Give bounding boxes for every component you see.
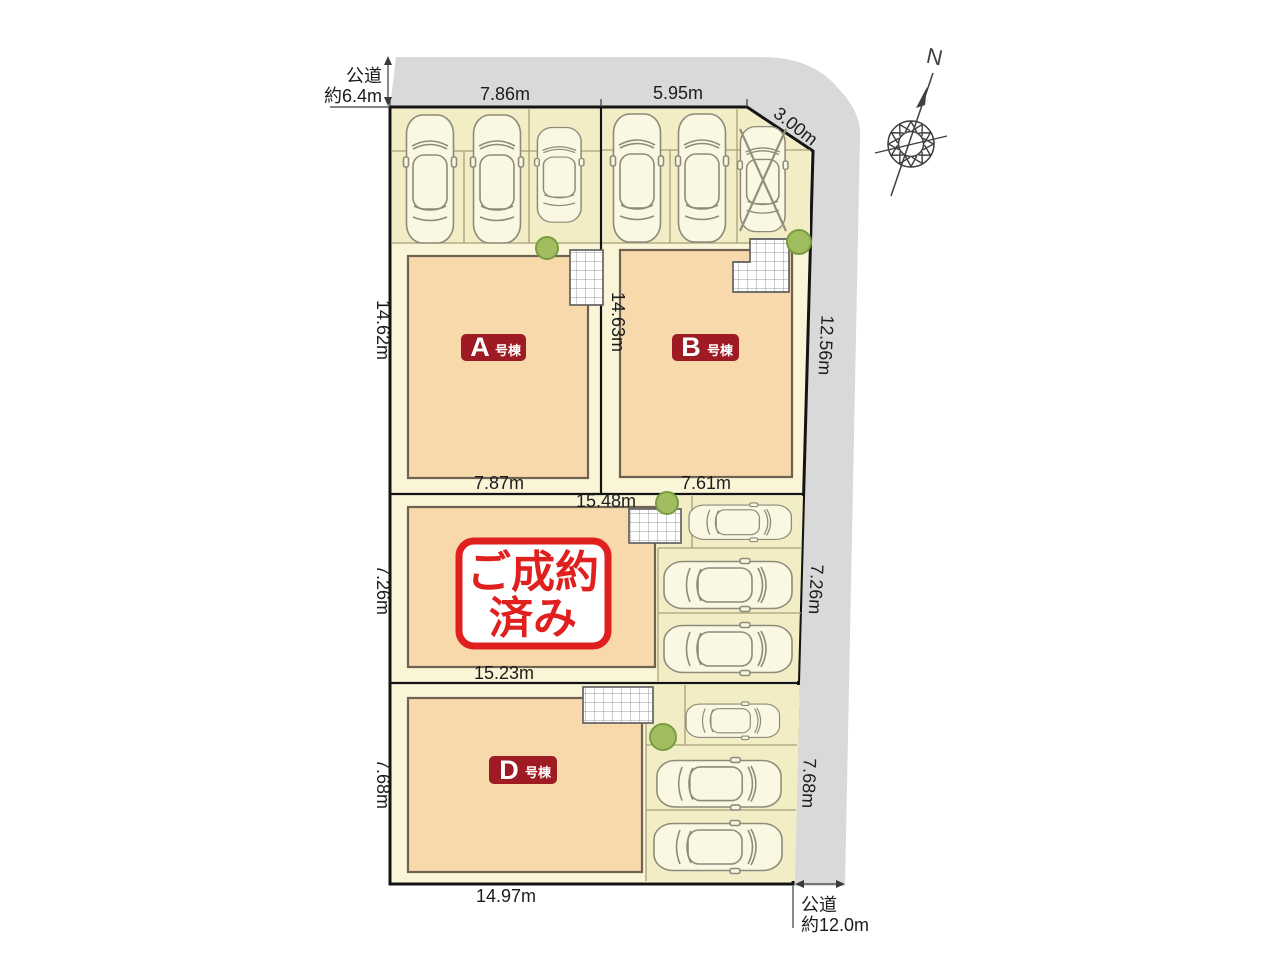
car-icon bbox=[676, 114, 729, 242]
road-label-top: 公道 約6.4m bbox=[324, 56, 392, 107]
badge-a-letter: A bbox=[470, 332, 490, 362]
dim-d-right: 7.68m bbox=[798, 758, 820, 809]
dim-d-left: 7.68m bbox=[373, 759, 393, 809]
badge-a: A 号棟 bbox=[461, 332, 526, 362]
porch-hatch-mid-grid bbox=[629, 509, 681, 543]
porch-hatch-d-grid bbox=[583, 687, 653, 723]
badge-a-suffix: 号棟 bbox=[495, 343, 522, 358]
car-icon bbox=[664, 623, 792, 676]
dim-mid-bottom: 15.23m bbox=[474, 663, 534, 683]
compass-needle-line bbox=[891, 73, 933, 196]
arrow-up-icon bbox=[384, 56, 392, 65]
car-icon bbox=[686, 702, 779, 740]
dim-d-bottom: 14.97m bbox=[476, 886, 536, 906]
tree-icon bbox=[656, 492, 678, 514]
building-a bbox=[408, 256, 588, 478]
site-plan-page: A 号棟 B 号棟 D 号棟 ご成約 済み 7.86m 5.95m 3.00m … bbox=[0, 0, 1280, 960]
car-icon bbox=[404, 115, 457, 243]
sold-stamp-line1: ご成約 bbox=[467, 548, 599, 597]
compass-north-label: N bbox=[924, 43, 945, 71]
car-icon bbox=[657, 758, 781, 810]
car-icon bbox=[471, 115, 524, 243]
dim-top-b: 5.95m bbox=[653, 83, 703, 103]
car-icon bbox=[664, 559, 792, 612]
road-top-width: 約6.4m bbox=[324, 86, 382, 106]
compass-arrowhead bbox=[916, 87, 927, 108]
tree-icon bbox=[787, 230, 811, 254]
badge-d-suffix: 号棟 bbox=[525, 765, 552, 780]
dim-b-bottom: 7.61m bbox=[681, 473, 731, 493]
site-plan-canvas: A 号棟 B 号棟 D 号棟 ご成約 済み 7.86m 5.95m 3.00m … bbox=[0, 0, 1280, 960]
dim-left-top: 14.62m bbox=[373, 300, 393, 360]
road-bottom-width: 約12.0m bbox=[801, 915, 869, 935]
car-icon bbox=[689, 503, 791, 542]
building-d bbox=[408, 698, 642, 872]
porch-hatch-a-grid bbox=[570, 250, 603, 305]
dim-a-bottom: 7.87m bbox=[474, 473, 524, 493]
badge-b-letter: B bbox=[681, 332, 701, 362]
road-bottom-name: 公道 bbox=[801, 895, 837, 915]
road-top-name: 公道 bbox=[346, 66, 382, 86]
dim-mid-right: 7.26m bbox=[805, 564, 828, 615]
sold-stamp-line2: 済み bbox=[489, 594, 577, 643]
car-icon bbox=[535, 127, 584, 222]
compass-icon: N bbox=[875, 43, 947, 196]
dim-top-a: 7.86m bbox=[480, 84, 530, 104]
dim-mid-left: 7.26m bbox=[373, 565, 393, 615]
car-icon bbox=[654, 821, 782, 874]
badge-d-letter: D bbox=[499, 755, 519, 785]
tree-icon bbox=[650, 724, 676, 750]
dim-mid-top: 15.48m bbox=[576, 491, 636, 511]
tree-icon bbox=[536, 237, 558, 259]
badge-b-suffix: 号棟 bbox=[707, 343, 734, 358]
dim-center-ab: 14.63m bbox=[608, 292, 628, 352]
road-label-bottom: 公道 約12.0m bbox=[793, 880, 869, 935]
dim-right-top: 12.56m bbox=[814, 315, 837, 376]
badge-b: B 号棟 bbox=[672, 332, 739, 362]
car-icon bbox=[611, 114, 664, 242]
sold-stamp: ご成約 済み bbox=[459, 541, 608, 646]
badge-d: D 号棟 bbox=[489, 755, 557, 785]
